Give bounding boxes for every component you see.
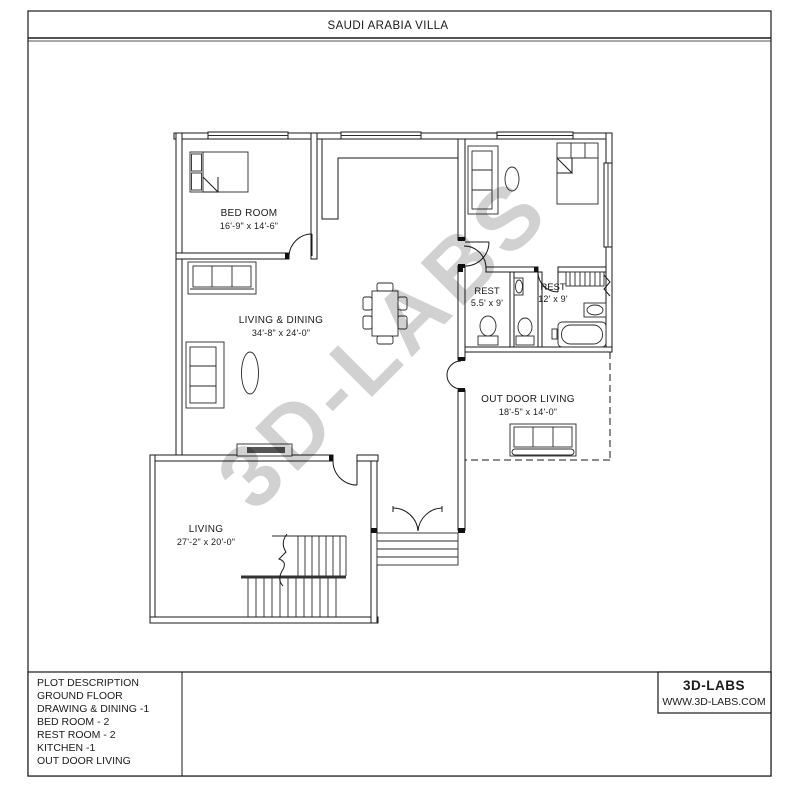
sheet-title: SAUDI ARABIA VILLA (328, 20, 449, 32)
drawing-sheet: SAUDI ARABIA VILLA (0, 0, 800, 800)
entry-steps (377, 533, 458, 565)
brand-box: 3D-LABS WWW.3D-LABS.COM (658, 672, 771, 713)
sofa-symbol (188, 262, 256, 294)
living-label: LIVING (189, 524, 224, 535)
rest-large-label: REST (540, 282, 566, 293)
plot-line: DRAWING & DINING -1 (37, 703, 149, 715)
toilet-symbol (516, 318, 534, 345)
sofa-symbol (186, 342, 224, 408)
plot-line: PLOT DESCRIPTION (37, 677, 139, 689)
bed-symbol (557, 143, 598, 204)
brand-website: WWW.3D-LABS.COM (662, 696, 765, 708)
plot-line: OUT DOOR LIVING (37, 755, 131, 767)
outdoor-label: OUT DOOR LIVING (481, 394, 575, 405)
bedroom-label: BED ROOM (221, 208, 278, 219)
brand-name: 3D-LABS (683, 678, 745, 693)
plot-line: BED ROOM - 2 (37, 716, 110, 728)
vanity-sink-symbol (584, 303, 606, 317)
window-icon (341, 132, 421, 139)
bed-symbol (190, 152, 248, 192)
rest-large-dims: 12' x 9' (538, 294, 568, 304)
coffee-table-symbol (242, 352, 259, 394)
toilet-symbol (478, 316, 498, 345)
sink-symbol (514, 278, 523, 295)
living-dining-dims: 34'-8" x 24'-0" (252, 328, 310, 338)
floor-plan-drawing: SAUDI ARABIA VILLA (0, 0, 800, 800)
plot-line: REST ROOM - 2 (37, 729, 116, 741)
sofa-symbol (510, 424, 576, 456)
living-dining-label: LIVING & DINING (239, 315, 324, 326)
bedroom-dims: 16'-9" x 14'-6" (220, 221, 278, 231)
window-icon (208, 132, 288, 139)
living-dims: 27'-2" x 20'-0" (177, 537, 235, 547)
outdoor-dims: 18'-5" x 14'-0" (499, 407, 557, 417)
window-icon (497, 132, 573, 139)
bathtub-symbol (552, 322, 606, 347)
plot-line: KITCHEN -1 (37, 742, 96, 754)
plot-line: GROUND FLOOR (37, 690, 123, 702)
window-icon (604, 163, 612, 247)
title-block: PLOT DESCRIPTION GROUND FLOOR DRAWING & … (28, 672, 771, 776)
